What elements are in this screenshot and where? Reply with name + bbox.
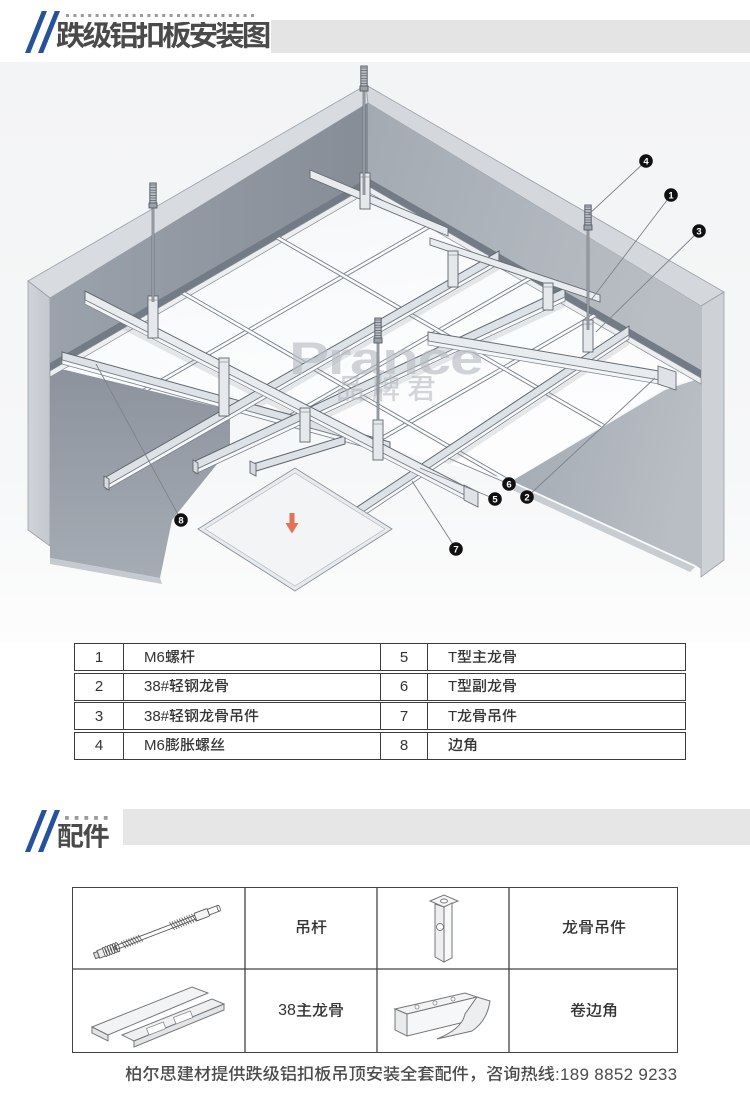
- svg-text:1: 1: [668, 190, 674, 201]
- svg-text:8: 8: [178, 515, 183, 526]
- svg-text:5: 5: [492, 494, 498, 505]
- svg-text:4: 4: [643, 156, 649, 167]
- svg-text:2: 2: [524, 492, 529, 503]
- svg-text:6: 6: [506, 479, 511, 490]
- svg-text:7: 7: [453, 544, 458, 555]
- svg-text:3: 3: [696, 226, 701, 237]
- svg-text:Prance: Prance: [289, 334, 482, 384]
